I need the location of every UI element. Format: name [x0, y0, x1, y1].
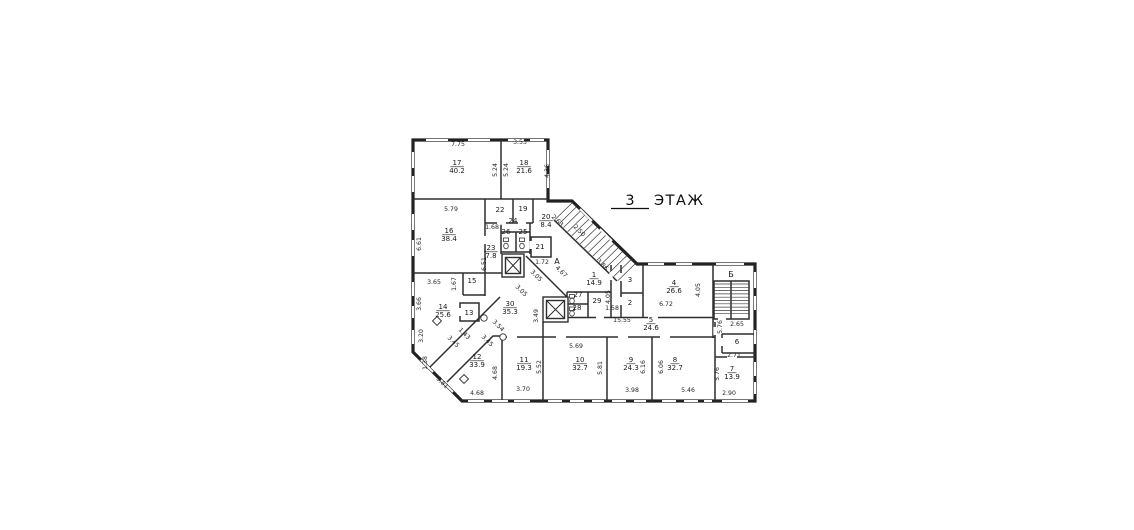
labels: 114.923426.6524.66713.9832.7924.31032.71… — [416, 139, 744, 397]
dim-label: 7.75 — [451, 141, 465, 148]
svg-text:9: 9 — [629, 356, 633, 364]
floor-title: 3 ЭТАЖ — [611, 193, 705, 209]
dim-label: 1.58 — [605, 305, 619, 312]
svg-text:12: 12 — [473, 353, 482, 361]
stairwell-letter: Б — [728, 270, 734, 279]
svg-text:29: 29 — [593, 297, 602, 305]
dim-label: 4.68 — [492, 366, 499, 380]
dim-label: 1.68 — [485, 224, 499, 231]
svg-text:25: 25 — [519, 228, 528, 236]
dim-label: 6.72 — [659, 301, 673, 308]
dim-label: 3.54 — [491, 319, 506, 334]
dim-label: 5.76 — [714, 367, 721, 381]
svg-text:14.9: 14.9 — [586, 279, 602, 287]
dim-label: 3.45 — [446, 335, 461, 350]
dim-label: 3.05 — [514, 284, 529, 299]
room-label-26: 26 — [502, 228, 511, 236]
room-label-6: 6 — [735, 338, 740, 346]
room-label-3: 3 — [628, 276, 632, 284]
room-label-15: 15 — [468, 277, 477, 285]
svg-text:5: 5 — [649, 316, 653, 324]
room-label-1: 114.9 — [586, 271, 602, 287]
dim-label: 5.76 — [717, 320, 724, 334]
dim-label: 4.68 — [470, 390, 484, 397]
room-label-21: 21 — [536, 243, 545, 251]
stairwell-a-treads — [555, 203, 635, 281]
dim-label: 3.66 — [416, 297, 423, 311]
svg-text:19.3: 19.3 — [516, 364, 532, 372]
room-label-18: 1821.6 — [516, 159, 532, 175]
room-label-28: 28 — [573, 304, 582, 312]
svg-text:23: 23 — [487, 244, 496, 252]
room-label-2: 2 — [628, 299, 632, 307]
dim-label: 3.86 — [595, 258, 610, 273]
svg-text:13: 13 — [465, 309, 474, 317]
dim-label: 6.06 — [658, 360, 665, 374]
svg-text:32.7: 32.7 — [572, 364, 588, 372]
room-label-29: 29 — [593, 297, 602, 305]
svg-text:26.6: 26.6 — [666, 287, 682, 295]
svg-text:7: 7 — [730, 365, 734, 373]
floor-title-number: 3 — [625, 193, 634, 209]
dim-label: 5.69 — [569, 343, 583, 350]
svg-text:30: 30 — [506, 300, 515, 308]
svg-text:14: 14 — [439, 303, 448, 311]
svg-text:6: 6 — [735, 338, 740, 346]
round-column — [481, 315, 487, 321]
round-column — [500, 334, 506, 340]
dim-label: 3.49 — [533, 309, 540, 323]
svg-text:21: 21 — [536, 243, 545, 251]
svg-text:19: 19 — [519, 205, 528, 213]
dim-label: 4.36 — [544, 164, 551, 178]
svg-text:13.9: 13.9 — [724, 373, 740, 381]
room-label-13: 13 — [465, 309, 474, 317]
room-label-9: 924.3 — [623, 356, 639, 372]
room-label-20: 208.4 — [539, 213, 553, 229]
dim-label: 2.65 — [730, 321, 744, 328]
dim-label: 5.46 — [681, 387, 695, 394]
dim-label: 3.98 — [625, 387, 639, 394]
room-label-10: 1032.7 — [572, 356, 588, 372]
svg-text:1: 1 — [592, 271, 596, 279]
dim-label: 3.53 — [513, 139, 527, 146]
dim-label: 2.50 — [572, 224, 587, 239]
dim-label: 6.51 — [481, 257, 488, 271]
svg-text:21.6: 21.6 — [516, 167, 532, 175]
dim-label: 6.61 — [416, 237, 423, 251]
dim-label: 6.16 — [640, 360, 647, 374]
room-label-14: 1425.6 — [435, 303, 451, 319]
svg-text:38.4: 38.4 — [441, 235, 457, 243]
room-label-8: 832.7 — [667, 356, 683, 372]
dim-label: 3.20 — [418, 329, 425, 343]
svg-text:11: 11 — [520, 356, 529, 364]
svg-text:18: 18 — [520, 159, 529, 167]
room-label-27: 27 — [574, 291, 583, 299]
dim-label: 3.65 — [427, 279, 441, 286]
svg-text:28: 28 — [573, 304, 582, 312]
dim-label: 1.72 — [535, 259, 549, 266]
svg-text:25.6: 25.6 — [435, 311, 451, 319]
svg-text:32.7: 32.7 — [667, 364, 683, 372]
room-label-19: 19 — [519, 205, 528, 213]
svg-text:8.4: 8.4 — [540, 221, 552, 229]
floor-title-word: ЭТАЖ — [654, 193, 705, 209]
svg-text:22: 22 — [496, 206, 505, 214]
room-label-12: 1233.9 — [469, 353, 485, 369]
elevator-shaft-2 — [543, 297, 568, 322]
svg-text:17: 17 — [453, 159, 462, 167]
floor-plan: 114.923426.6524.66713.9832.7924.31032.71… — [0, 0, 1134, 530]
floor-plan-canvas: 114.923426.6524.66713.9832.7924.31032.71… — [0, 0, 1134, 530]
svg-text:15: 15 — [468, 277, 477, 285]
svg-text:2: 2 — [628, 299, 632, 307]
dim-label: 4.05 — [605, 290, 612, 304]
svg-text:10: 10 — [576, 356, 585, 364]
room-label-17: 1740.2 — [449, 159, 465, 175]
room-label-7: 713.9 — [724, 365, 740, 381]
dim-label: 5.24 — [492, 163, 499, 177]
dim-label: 1.38 — [422, 356, 429, 370]
svg-text:24.6: 24.6 — [643, 324, 659, 332]
dim-label: 4.67 — [554, 265, 569, 280]
dim-label: 2.90 — [722, 390, 736, 397]
elevator-shaft-1 — [502, 254, 524, 277]
svg-text:3: 3 — [628, 276, 632, 284]
dim-label: 4.05 — [695, 283, 702, 297]
svg-text:24: 24 — [509, 217, 518, 225]
stairwell-letter: А — [554, 257, 560, 266]
room-label-4: 426.6 — [666, 279, 682, 295]
room-label-30: 3035.3 — [502, 300, 518, 316]
svg-text:40.2: 40.2 — [449, 167, 465, 175]
room-label-22: 22 — [496, 206, 505, 214]
room-label-16: 1638.4 — [441, 227, 457, 243]
room-label-25: 25 — [519, 228, 528, 236]
dim-label: 5.52 — [536, 360, 543, 374]
svg-text:35.3: 35.3 — [502, 308, 518, 316]
dim-label: 5.81 — [597, 361, 604, 375]
diamond-column — [460, 375, 469, 384]
room-label-24: 24 — [509, 217, 518, 225]
svg-text:8: 8 — [673, 356, 677, 364]
dim-label: 1.67 — [451, 277, 458, 291]
dim-label: 5.79 — [444, 206, 458, 213]
svg-text:24.3: 24.3 — [623, 364, 639, 372]
dim-label: 15.55 — [613, 317, 631, 324]
svg-text:26: 26 — [502, 228, 511, 236]
dim-label: 5.24 — [503, 163, 510, 177]
dim-label: 3.70 — [516, 386, 530, 393]
svg-text:33.9: 33.9 — [469, 361, 485, 369]
svg-text:16: 16 — [445, 227, 454, 235]
svg-text:4: 4 — [672, 279, 677, 287]
svg-text:27: 27 — [574, 291, 583, 299]
dim-label: 2.71 — [727, 352, 741, 359]
svg-text:20: 20 — [542, 213, 551, 221]
room-label-11: 1119.3 — [516, 356, 532, 372]
